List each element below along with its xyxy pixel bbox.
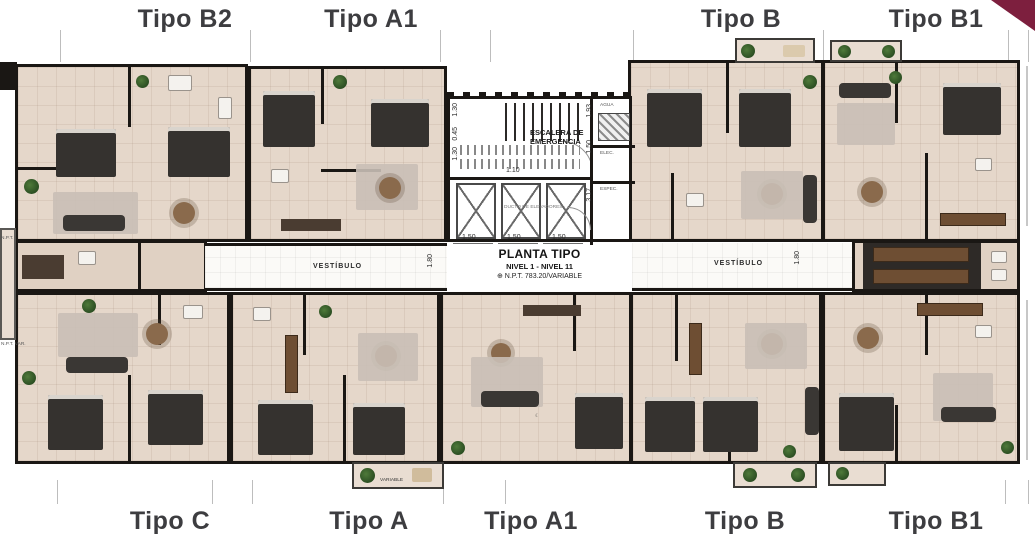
core-dim-193: 1.93 bbox=[586, 104, 593, 118]
plant bbox=[836, 467, 849, 480]
unit-tipo-b-bottom bbox=[630, 292, 822, 464]
elevator-shaft bbox=[501, 183, 541, 239]
interior-wall bbox=[593, 145, 635, 148]
elevator-dim-3: 1.50 bbox=[552, 234, 566, 241]
interior-wall bbox=[128, 67, 131, 127]
elevator-shaft bbox=[456, 183, 496, 239]
stair-dim: 1.30 bbox=[452, 103, 459, 117]
kitchen-counter bbox=[281, 219, 341, 231]
utility-label-elec: ELEC. bbox=[600, 151, 614, 156]
bed bbox=[353, 403, 405, 455]
label-tipo-c-bottom: Tipo C bbox=[130, 507, 210, 536]
bed bbox=[48, 395, 103, 450]
sofa bbox=[941, 407, 996, 422]
bed bbox=[258, 400, 313, 455]
tick-mark bbox=[57, 480, 58, 504]
corridor-center: PLANTA TIPO NIVEL 1 - NIVEL 11 ⊕ N.P.T. … bbox=[447, 241, 632, 291]
label-tipo-a1-bottom: Tipo A1 bbox=[484, 507, 578, 536]
tick-mark bbox=[1005, 480, 1006, 504]
npt-label-top: N.P.T. bbox=[1, 236, 13, 241]
rug bbox=[837, 103, 895, 145]
plan-title-block: PLANTA TIPO NIVEL 1 - NIVEL 11 ⊕ N.P.T. … bbox=[447, 247, 632, 280]
plant bbox=[82, 299, 96, 313]
utility-label-agua: AGUA bbox=[600, 103, 614, 108]
wardrobe bbox=[689, 323, 702, 375]
interior-wall bbox=[321, 69, 324, 124]
vestibulo-left-label: VESTÍBULO bbox=[313, 263, 362, 270]
plant bbox=[743, 468, 757, 482]
building-core: ESCALERA DE EMERGENCIA DUCTO DE ELEVADOR… bbox=[447, 96, 632, 242]
wardrobe bbox=[940, 213, 1006, 226]
plant bbox=[791, 468, 805, 482]
dining-table bbox=[861, 181, 883, 203]
bath-fixture bbox=[168, 75, 192, 91]
unit-tipo-a-bottom bbox=[230, 292, 440, 464]
bath-fixture bbox=[686, 193, 704, 207]
tick-mark bbox=[60, 30, 61, 62]
unit-tipo-a1-top bbox=[248, 66, 447, 242]
balcony-dim-label: VARIABLE bbox=[380, 478, 403, 483]
plan-subtitle: NIVEL 1 - NIVEL 11 bbox=[447, 262, 632, 271]
plant bbox=[319, 305, 332, 318]
plant bbox=[24, 179, 39, 194]
plant bbox=[1001, 441, 1014, 454]
plant bbox=[136, 75, 149, 88]
bed bbox=[703, 397, 758, 452]
plant bbox=[803, 75, 817, 89]
plan-title: PLANTA TIPO bbox=[447, 247, 632, 261]
corridor-width-dim: 1.80 bbox=[794, 251, 801, 265]
floor-plan-canvas: Tipo B2 Tipo A1 Tipo B Tipo B1 Tipo C Ti… bbox=[0, 0, 1035, 544]
dim-line bbox=[543, 243, 583, 244]
wardrobe bbox=[285, 335, 298, 393]
unit-mid-left-band bbox=[15, 240, 207, 292]
tick-mark bbox=[250, 30, 251, 62]
label-tipo-b1-top: Tipo B1 bbox=[889, 5, 984, 34]
edge-dimension-line bbox=[1026, 300, 1028, 460]
edge-dimension-line bbox=[1026, 66, 1028, 226]
plant bbox=[741, 44, 755, 58]
tick-mark bbox=[505, 480, 506, 504]
stair-dim: 1.30 bbox=[452, 147, 459, 161]
label-tipo-b-bottom: Tipo B bbox=[705, 507, 785, 536]
rug bbox=[58, 313, 138, 357]
wardrobe bbox=[917, 303, 983, 316]
kitchen-counter bbox=[523, 305, 581, 316]
balcony-bottom-b1 bbox=[828, 462, 886, 486]
wardrobe bbox=[873, 247, 969, 262]
elevator-dim-2: 1.50 bbox=[507, 234, 521, 241]
rug bbox=[745, 323, 807, 369]
elevator-duct-label: DUCTO DE ELEVADORES bbox=[504, 205, 536, 210]
rug bbox=[741, 171, 803, 219]
unit-tipo-c-bottom bbox=[15, 292, 230, 464]
plant bbox=[889, 71, 902, 84]
rug bbox=[358, 333, 418, 381]
sofa bbox=[63, 215, 125, 231]
sofa bbox=[803, 175, 817, 223]
wardrobe bbox=[873, 269, 969, 284]
sofa bbox=[66, 357, 128, 373]
sofa bbox=[839, 83, 891, 98]
bed bbox=[943, 83, 1001, 135]
vestibulo-right-label: VESTÍBULO bbox=[714, 260, 763, 267]
label-tipo-b2-top: Tipo B2 bbox=[138, 5, 233, 34]
utility-label-espec: ESPEC. bbox=[600, 187, 618, 192]
interior-wall bbox=[675, 295, 678, 361]
bed bbox=[645, 397, 695, 452]
plant bbox=[333, 75, 347, 89]
interior-wall bbox=[573, 295, 576, 351]
unit-tipo-a1-bottom: ☾ bbox=[440, 292, 632, 464]
corridor-right: VESTÍBULO 1.80 bbox=[632, 243, 852, 291]
bed bbox=[263, 91, 315, 147]
bed bbox=[168, 127, 230, 177]
column-markers bbox=[447, 92, 632, 99]
balcony-top-b1 bbox=[830, 40, 902, 62]
bath-fixture bbox=[253, 307, 271, 321]
interior-wall bbox=[343, 375, 346, 461]
tick-mark bbox=[440, 30, 441, 62]
tick-mark bbox=[1028, 480, 1029, 504]
tick-mark bbox=[1008, 30, 1009, 62]
tick-mark bbox=[823, 30, 824, 62]
interior-wall bbox=[895, 405, 898, 461]
bed bbox=[647, 89, 702, 147]
dining-table bbox=[146, 323, 168, 345]
door-swing bbox=[568, 207, 591, 230]
bath-fixture bbox=[271, 169, 289, 183]
corridor-width-dim: 1.80 bbox=[427, 254, 434, 268]
interior-wall bbox=[726, 63, 729, 133]
corridor-left: VESTÍBULO 1.80 bbox=[205, 243, 447, 291]
plant bbox=[22, 371, 36, 385]
bath-fixture bbox=[975, 158, 992, 171]
tick-mark bbox=[212, 480, 213, 504]
plant bbox=[360, 468, 375, 483]
bath-fixture bbox=[991, 269, 1007, 281]
interior-wall bbox=[303, 295, 306, 355]
interior-wall bbox=[128, 375, 131, 461]
bed bbox=[56, 129, 116, 177]
bed bbox=[148, 390, 203, 445]
plant bbox=[838, 45, 851, 58]
sofa bbox=[481, 391, 539, 407]
label-tipo-a-bottom: Tipo A bbox=[329, 507, 408, 536]
tick-mark bbox=[633, 30, 634, 62]
bed bbox=[371, 99, 429, 147]
stair-label: ESCALERA DE EMERGENCIA bbox=[530, 129, 583, 146]
interior-wall bbox=[593, 181, 635, 184]
corner-ribbon bbox=[991, 0, 1035, 31]
dining-table bbox=[379, 177, 401, 199]
tick-mark bbox=[490, 30, 491, 62]
plant bbox=[783, 445, 796, 458]
npt-label-bottom: N.P.T. VAR. bbox=[1, 342, 26, 347]
kitchen-counter bbox=[22, 255, 64, 279]
bath-fixture bbox=[218, 97, 232, 119]
core-dim-150: 1.50 bbox=[586, 140, 593, 154]
bed bbox=[739, 89, 791, 147]
balcony-top-b bbox=[735, 38, 815, 63]
label-tipo-a1-top: Tipo A1 bbox=[324, 5, 418, 34]
dim-line bbox=[453, 243, 493, 244]
plant bbox=[451, 441, 465, 455]
balcony-left-edge bbox=[0, 228, 16, 340]
balcony-chair bbox=[783, 45, 805, 57]
balcony-bottom-variable: VARIABLE bbox=[352, 462, 444, 489]
elevator-dim-1: 1.50 bbox=[462, 234, 476, 241]
floor-marking: ☾ bbox=[535, 413, 539, 419]
left-edge-structure bbox=[0, 62, 17, 90]
stair-run-dim: 1.10 bbox=[506, 167, 520, 174]
plant bbox=[882, 45, 895, 58]
label-tipo-b1-bottom: Tipo B1 bbox=[889, 507, 984, 536]
dining-table bbox=[173, 202, 195, 224]
bath-fixture bbox=[991, 251, 1007, 263]
unit-tipo-b-top bbox=[628, 60, 824, 242]
bath-fixture bbox=[183, 305, 203, 319]
tick-mark bbox=[1028, 30, 1029, 62]
balcony-bottom-b bbox=[733, 462, 817, 488]
interior-wall bbox=[450, 177, 593, 180]
tick-mark bbox=[252, 480, 253, 504]
interior-wall bbox=[925, 153, 928, 239]
unit-mid-right-band bbox=[852, 240, 1020, 292]
unit-tipo-b1-top bbox=[822, 60, 1020, 242]
bed bbox=[575, 393, 623, 449]
interior-wall bbox=[590, 99, 593, 245]
shaft-hatch bbox=[598, 113, 630, 141]
bath-fixture bbox=[78, 251, 96, 265]
interior-wall bbox=[671, 173, 674, 239]
unit-tipo-b2-top bbox=[15, 64, 248, 242]
bath-fixture bbox=[975, 325, 992, 338]
plan-level: ⊕ N.P.T. 783.20/VARIABLE bbox=[447, 272, 632, 280]
core-dim-317: 3.17 bbox=[586, 188, 593, 202]
interior-wall bbox=[138, 243, 141, 289]
sofa bbox=[805, 387, 819, 435]
unit-tipo-b1-bottom bbox=[822, 292, 1020, 464]
balcony-desk bbox=[412, 468, 432, 482]
stair-dim: 0.45 bbox=[452, 127, 459, 141]
dining-table bbox=[857, 327, 879, 349]
dim-line bbox=[498, 243, 538, 244]
bed bbox=[839, 393, 894, 451]
label-tipo-b-top: Tipo B bbox=[701, 5, 781, 34]
